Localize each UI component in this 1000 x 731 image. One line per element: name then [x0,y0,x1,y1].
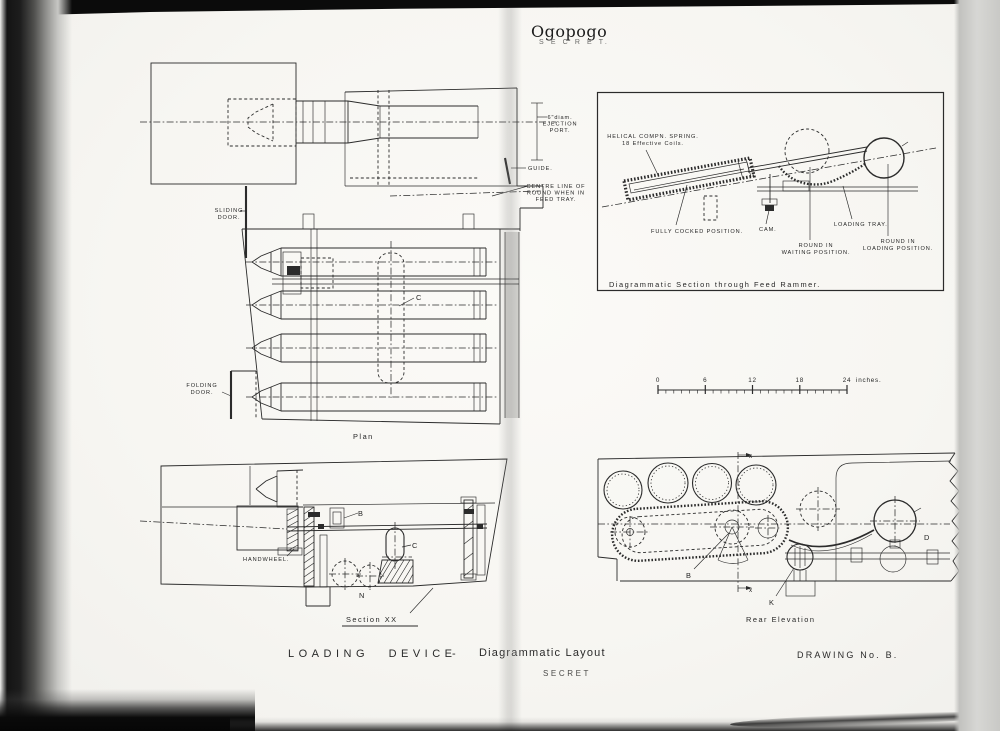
folding-door-label: FOLDING [186,383,217,389]
footer-title-dash: - [452,648,456,660]
page-fold-crease [498,0,522,731]
ejection-port-label: PORT. [550,128,571,134]
plan-part-c-label: C [416,293,423,302]
loading-tray-label: LOADING TRAY. [834,222,888,228]
round-loading-label: LOADING POSITION. [863,246,933,252]
sliding-door-label: SLIDING [215,208,244,214]
folding-door-label: DOOR. [191,390,214,396]
handwheel-label: HANDWHEEL. [243,557,289,563]
scale-tick-label: 0 [656,377,660,384]
feed-rammer-inset-drawing [598,93,944,291]
scale-tick-label: 6 [703,377,707,384]
section-xx-drawing [140,459,507,626]
rear-axis-x-bottom-label: x [749,587,753,594]
helical-spring-label: 18 Effective Coils. [622,141,684,147]
footer-title-main: LOADING DEVICE [288,648,457,660]
plan-view-drawing [140,63,556,424]
plan-caption: Plan [353,432,374,441]
plan-shell-rounds [246,248,498,411]
fully-cocked-label: FULLY COCKED POSITION. [651,229,743,235]
guide-label: GUIDE. [528,166,553,172]
rear-axis-x-top-label: x [749,453,753,460]
rear-k-label: K [769,598,775,607]
drawing-number: DRAWING No. B. [797,650,898,660]
helical-spring-label: HELICAL COMPN. SPRING. [607,134,698,140]
scale-bar [658,385,847,394]
ejection-port-label: EJECTION [543,122,578,128]
section-b-label: B [358,509,364,518]
scan-edge-shadow-bottom-left [0,689,255,731]
centre-line-label: FEED TRAY. [536,197,577,203]
section-xx-caption: Section XX [346,615,398,624]
rear-elevation-drawing [598,452,960,596]
scale-unit-label: inches. [856,377,882,384]
rear-b-label: B [686,571,692,580]
scanned-drawing-page: SLIDING DOOR. FOLDING DOOR. 6"diam. EJEC… [0,0,1000,731]
centre-line-label: ROUND WHEN IN [527,191,585,197]
ejection-port-label: 6"diam. [547,115,572,121]
section-n-label: N [359,591,366,600]
page-edge-right [954,0,1000,731]
secret-stamp-top: S E C R E T. [539,39,609,46]
round-loading-label: ROUND IN [881,239,916,245]
cam-label: CAM. [759,227,777,233]
secret-stamp-bottom: SECRET [543,669,591,678]
centre-line-label: CENTRE LINE OF [527,184,586,190]
round-waiting-label: WAITING POSITION. [782,250,851,256]
sliding-door-label: DOOR. [218,215,241,221]
scan-edge-shadow-left [0,0,72,731]
rear-d-label: D [924,533,931,542]
rammer-inset-caption: Diagrammatic Section through Feed Rammer… [609,280,821,289]
round-waiting-label: ROUND IN [799,243,834,249]
scale-tick-label: 24 [843,377,852,384]
scale-tick-label: 12 [748,377,757,384]
rear-elevation-caption: Rear Elevation [746,615,815,624]
section-c-label: C [412,541,419,550]
scale-tick-label: 18 [795,377,804,384]
